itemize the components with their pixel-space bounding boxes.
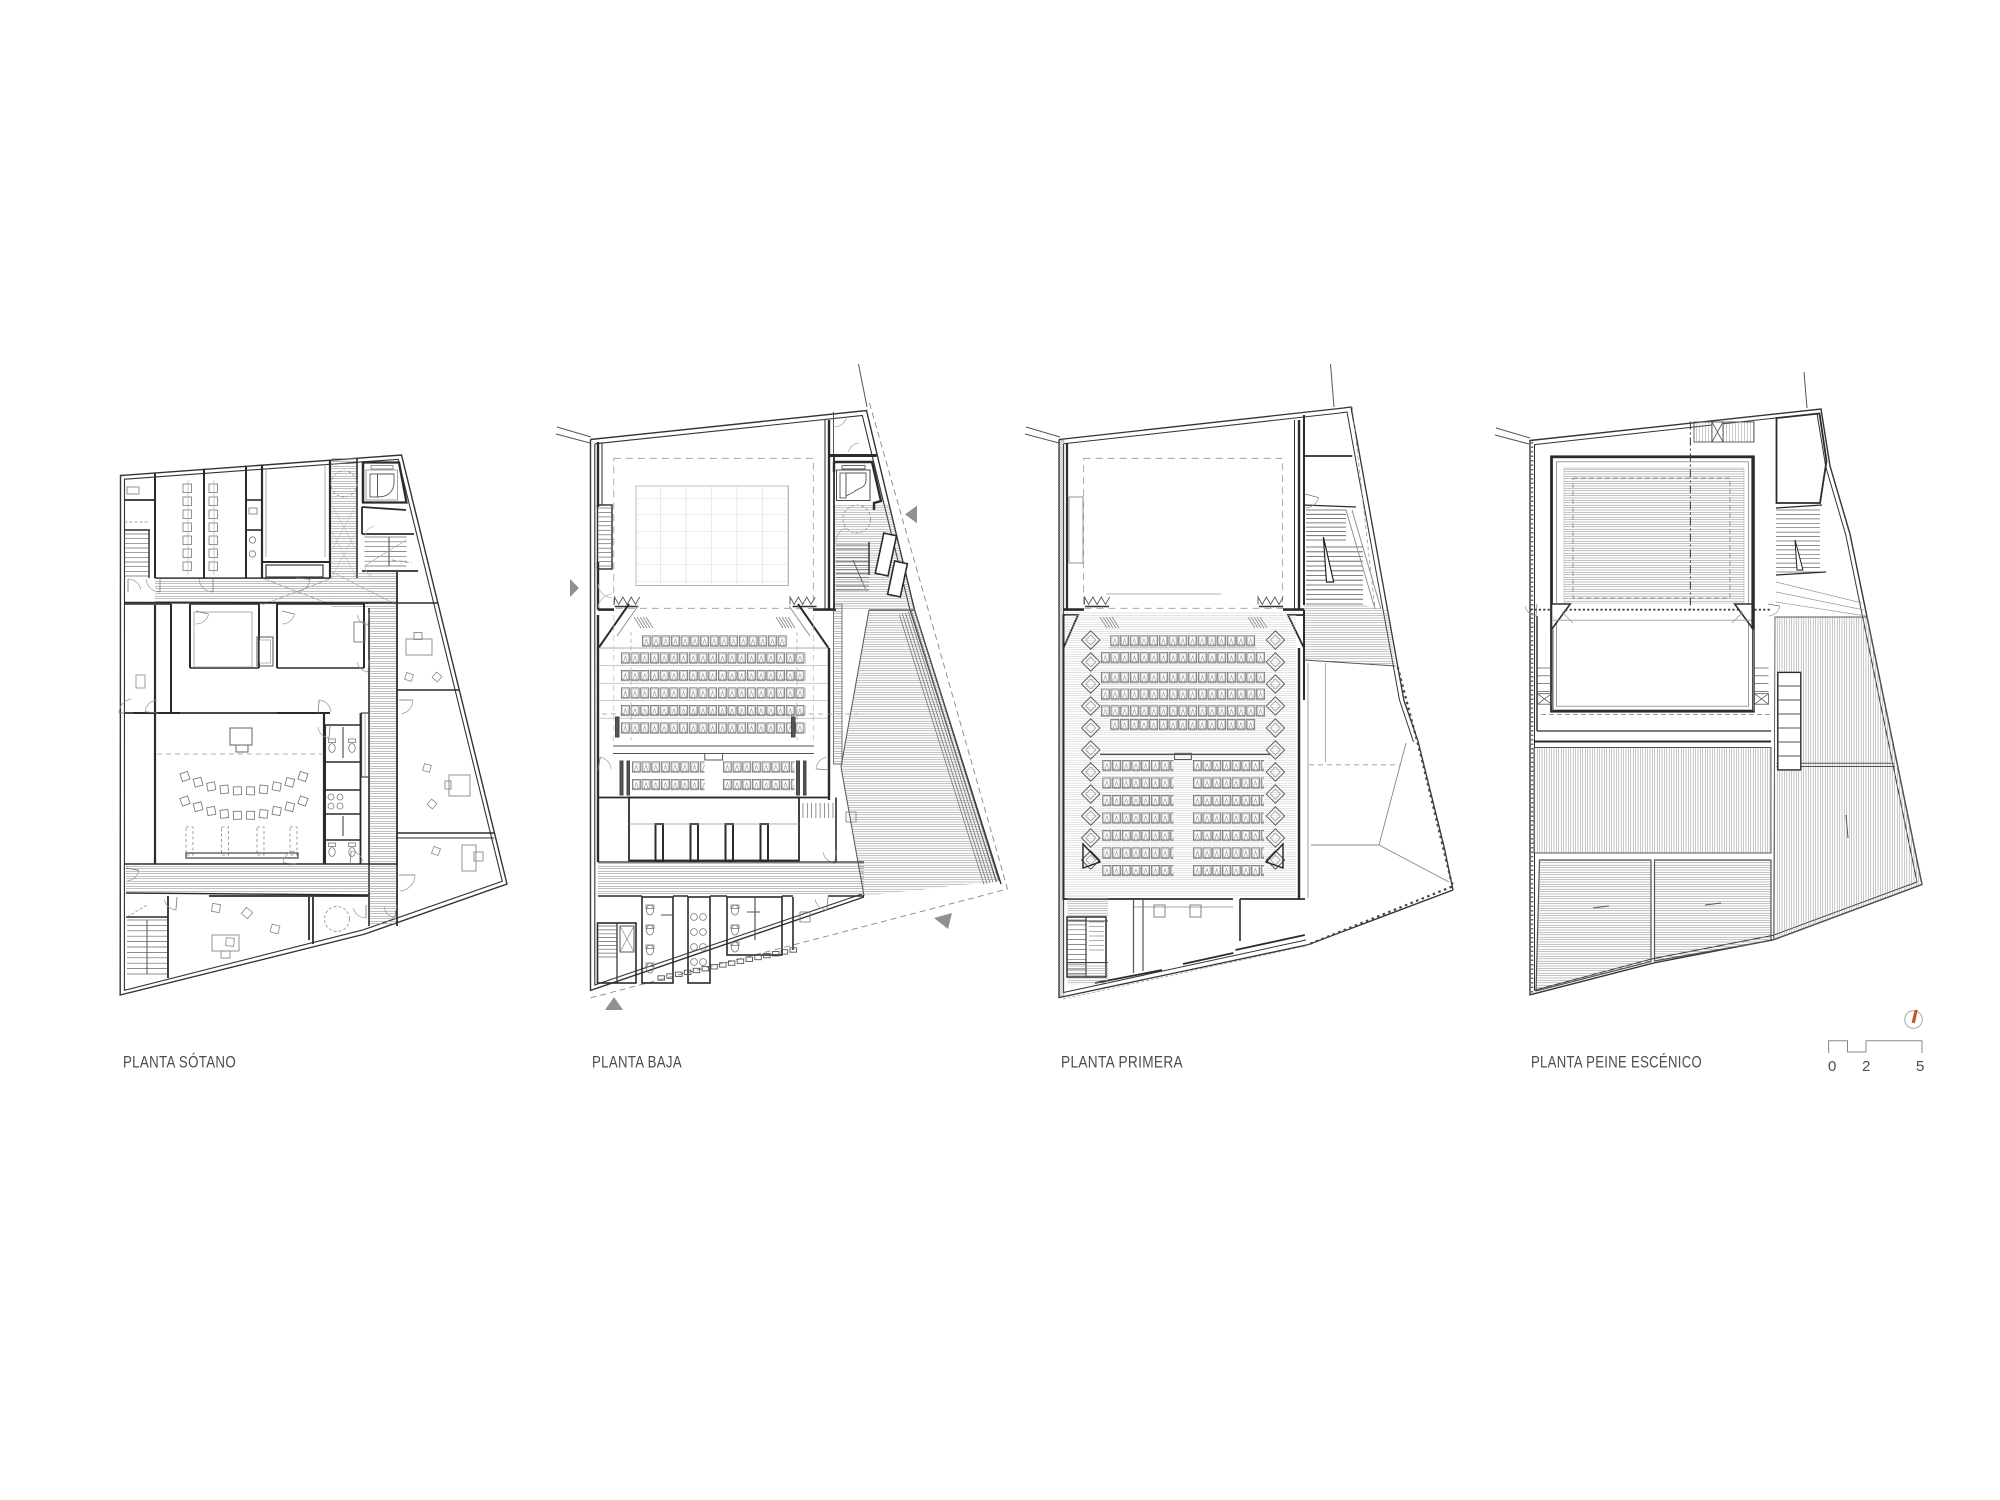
svg-text:2: 2 xyxy=(1862,1058,1870,1075)
svg-text:PLANTA PEINE ESCÉNICO: PLANTA PEINE ESCÉNICO xyxy=(1531,1053,1702,1072)
svg-text:5: 5 xyxy=(1916,1058,1924,1075)
svg-text:PLANTA SÓTANO: PLANTA SÓTANO xyxy=(123,1053,236,1072)
svg-text:PLANTA BAJA: PLANTA BAJA xyxy=(592,1054,682,1072)
svg-text:0: 0 xyxy=(1828,1058,1836,1075)
svg-text:PLANTA PRIMERA: PLANTA PRIMERA xyxy=(1061,1054,1183,1072)
